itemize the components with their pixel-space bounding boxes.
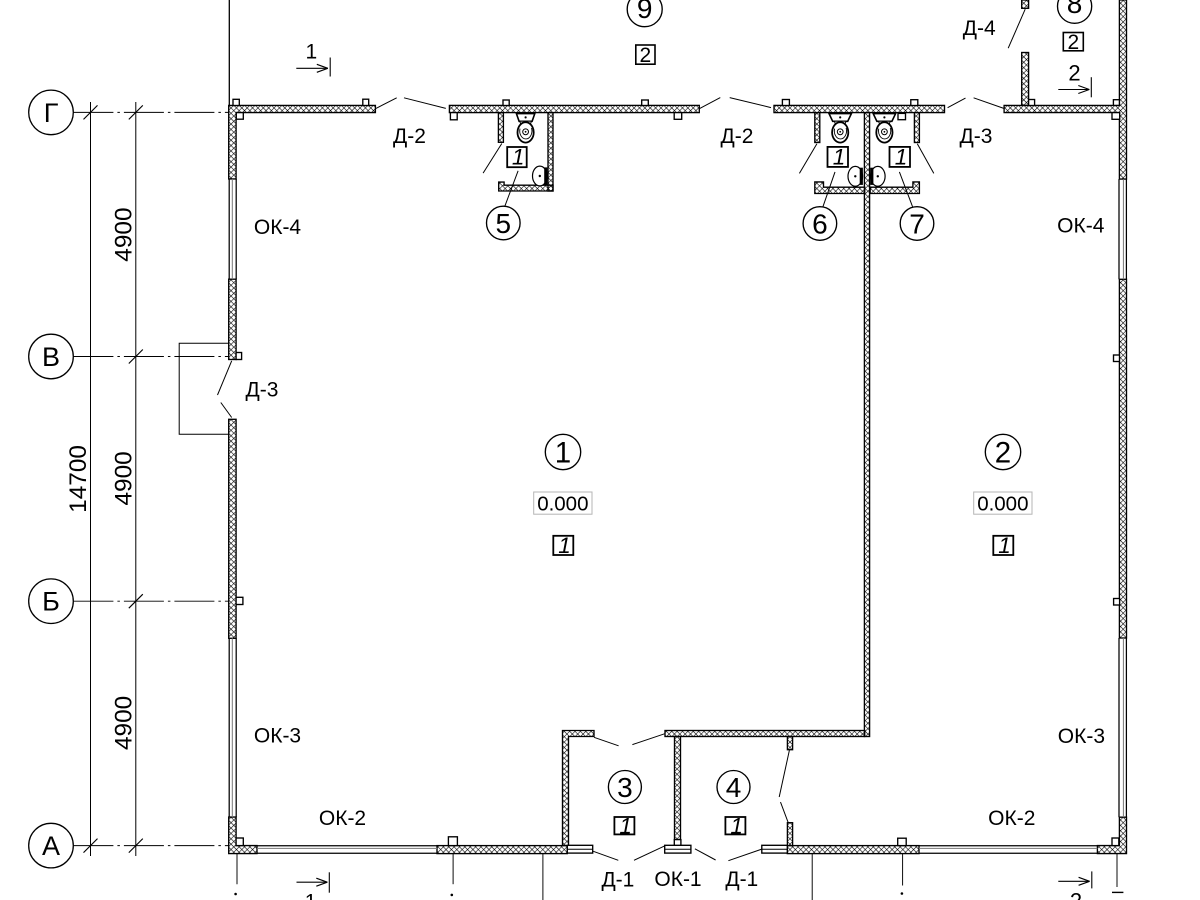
svg-text:14700: 14700 — [65, 445, 92, 513]
svg-text:4900: 4900 — [110, 207, 137, 261]
svg-text:2: 2 — [995, 437, 1011, 470]
svg-text:4900: 4900 — [110, 696, 137, 750]
svg-text:ОК-2: ОК-2 — [319, 807, 366, 830]
svg-text:ОК-4: ОК-4 — [1057, 215, 1105, 238]
svg-text:9: 9 — [637, 0, 653, 24]
svg-text:ОК-4: ОК-4 — [254, 216, 302, 239]
svg-text:0.000: 0.000 — [977, 492, 1028, 515]
svg-text:1: 1 — [895, 145, 908, 170]
svg-text:6: 6 — [812, 208, 828, 239]
svg-text:3: 3 — [617, 772, 633, 803]
svg-text:1: 1 — [305, 891, 317, 900]
svg-text:7: 7 — [909, 208, 925, 239]
svg-text:1: 1 — [305, 41, 317, 64]
svg-text:1: 1 — [619, 813, 632, 838]
svg-text:В: В — [42, 342, 60, 372]
svg-text:Д-1: Д-1 — [725, 868, 758, 891]
svg-text:2: 2 — [1067, 31, 1079, 54]
svg-text:4: 4 — [726, 772, 742, 803]
svg-text:ОК-3: ОК-3 — [1058, 725, 1105, 748]
svg-text:1: 1 — [512, 145, 525, 170]
svg-text:8: 8 — [1067, 0, 1083, 19]
svg-text:1: 1 — [998, 533, 1011, 558]
svg-text:1: 1 — [558, 533, 571, 558]
svg-text:2: 2 — [640, 44, 652, 67]
svg-text:2: 2 — [1070, 888, 1082, 900]
svg-text:Д-1: Д-1 — [601, 869, 634, 892]
svg-text:Д-3: Д-3 — [246, 379, 279, 402]
svg-text:5: 5 — [496, 208, 512, 239]
svg-text:Д-4: Д-4 — [963, 17, 996, 40]
svg-text:4900: 4900 — [110, 451, 137, 505]
svg-text:ОК-3: ОК-3 — [254, 725, 301, 748]
svg-text:0.000: 0.000 — [537, 492, 588, 515]
svg-text:А: А — [42, 831, 60, 861]
svg-text:Д-2: Д-2 — [393, 125, 426, 148]
svg-text:1: 1 — [833, 145, 846, 170]
svg-text:ОК-1: ОК-1 — [654, 868, 701, 891]
svg-text:Г: Г — [44, 98, 59, 128]
svg-text:1: 1 — [555, 437, 571, 470]
svg-text:ОК-2: ОК-2 — [988, 807, 1035, 830]
svg-text:2: 2 — [1068, 61, 1080, 86]
svg-text:Б: Б — [42, 587, 60, 617]
svg-text:1: 1 — [730, 813, 743, 838]
svg-text:Д-3: Д-3 — [960, 125, 993, 148]
svg-text:Д-2: Д-2 — [721, 125, 754, 148]
